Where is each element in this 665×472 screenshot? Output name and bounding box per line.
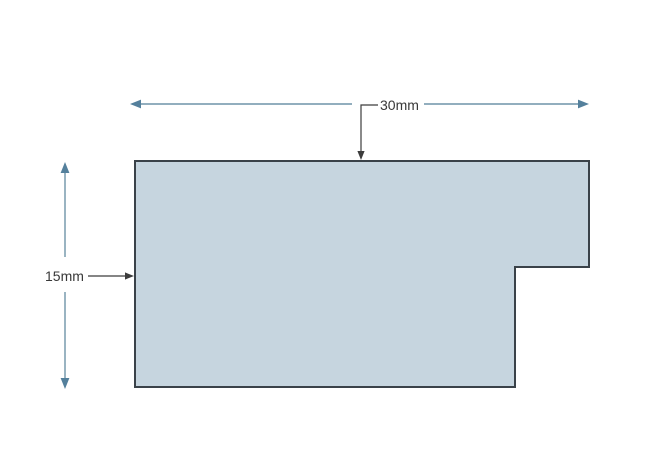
arrow-down-icon	[61, 378, 70, 389]
dimension-diagram: 30mm 15mm	[0, 0, 665, 472]
height-dimension-label: 15mm	[45, 268, 84, 284]
arrow-up-icon	[61, 162, 70, 173]
arrow-right-icon	[578, 100, 589, 109]
arrow-right-icon	[125, 272, 134, 279]
width-dimension: 30mm	[130, 97, 589, 160]
width-dimension-label: 30mm	[380, 97, 419, 113]
stepped-rectangle-shape	[135, 161, 589, 387]
width-leader-line	[361, 105, 378, 152]
arrow-down-icon	[357, 151, 364, 160]
height-dimension: 15mm	[45, 162, 134, 389]
arrow-left-icon	[130, 100, 141, 109]
diagram-canvas: 30mm 15mm	[0, 0, 665, 472]
